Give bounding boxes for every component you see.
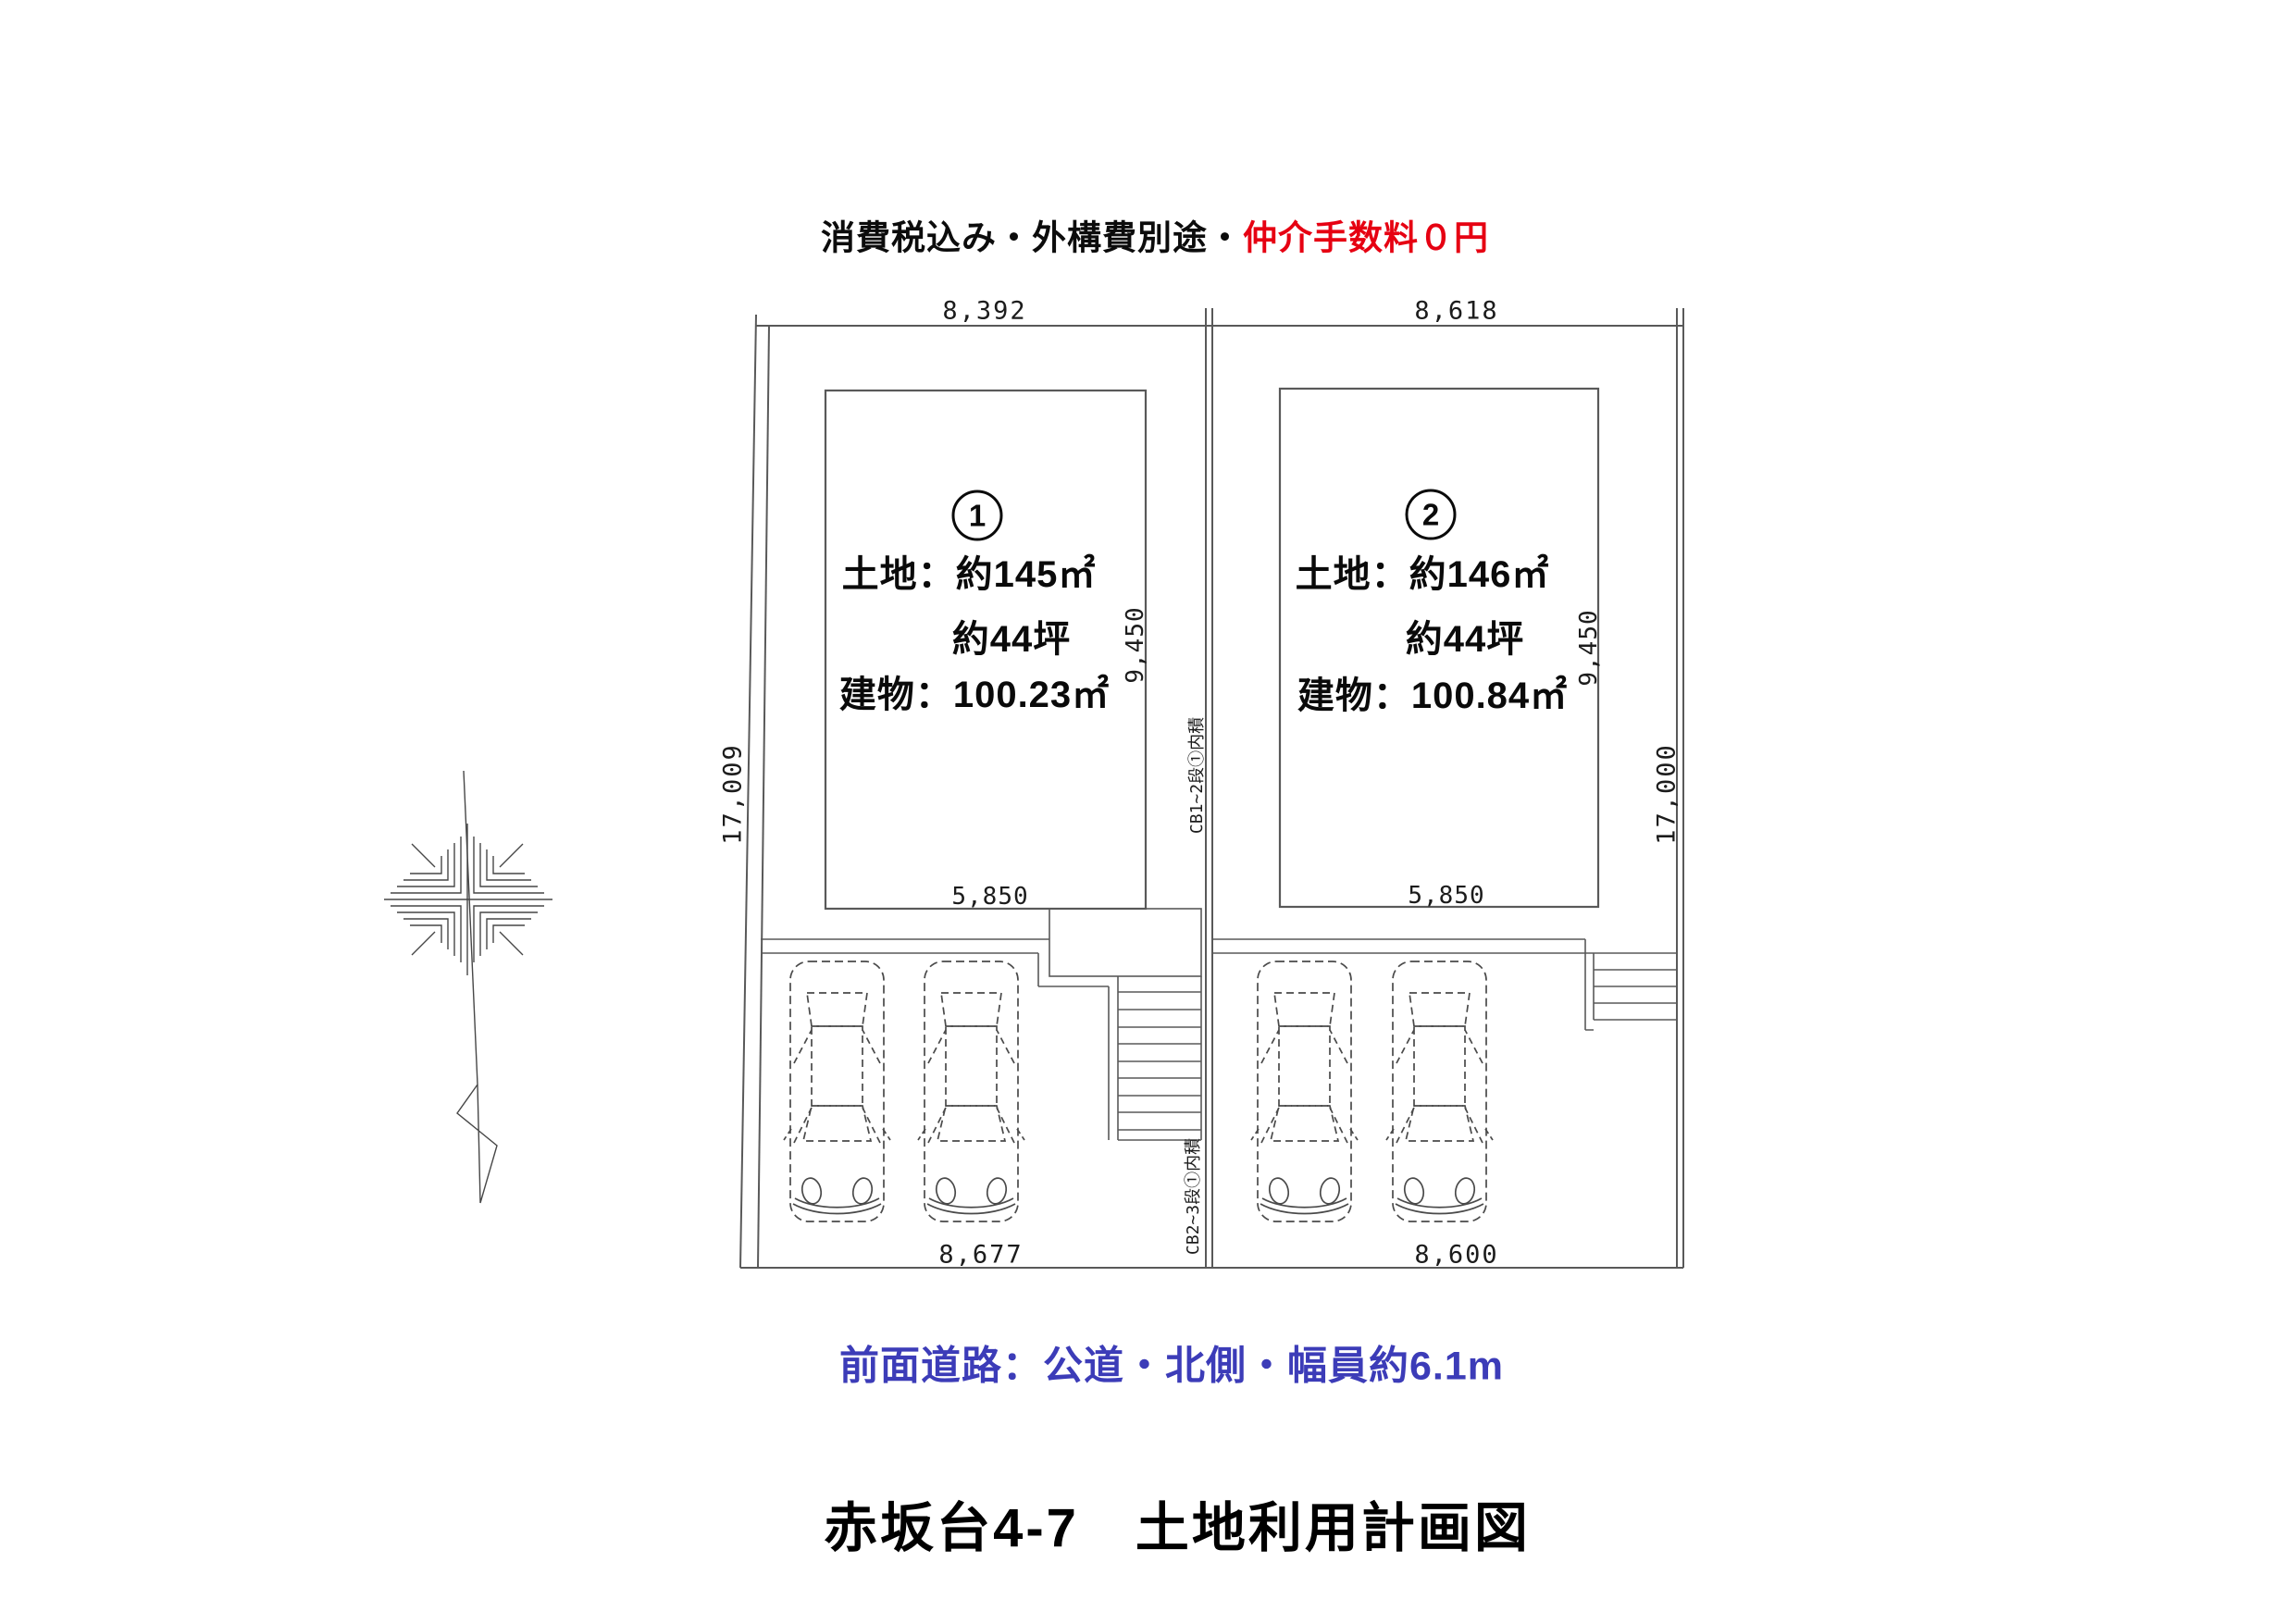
- lot1-building-depth-dim: 9,450: [1123, 606, 1148, 683]
- car-outline: [1386, 961, 1493, 1221]
- lot2-number-badge: 2: [1406, 490, 1457, 540]
- front-road-note: 前面道路：公道・北側・幅員約6.1m: [839, 1347, 1504, 1387]
- site-boundary-lines: [740, 308, 1683, 1268]
- lot2-building-area: 建物：100.84㎡: [1297, 677, 1568, 714]
- block-wall-note-upper: CB1~2段①内積: [1189, 717, 1206, 834]
- car-outline: [1251, 961, 1358, 1221]
- lot1-land-area: 土地：約145㎡: [842, 556, 1097, 593]
- lot1-building-area: 建物：100.23㎡: [839, 676, 1110, 713]
- price-note-black: 消費税込み・外構費別途・: [821, 219, 1243, 257]
- lot2-building-width-dim: 5,850: [1408, 884, 1484, 908]
- lot2-stairs-and-pad: [1212, 939, 1677, 1030]
- block-wall-note-lower: CB2~3段①内積: [1185, 1138, 1202, 1255]
- lot2-land-area: 土地：約146㎡: [1296, 556, 1550, 593]
- lot1-land-tsubo: 約44坪: [952, 621, 1072, 658]
- dim-side-left: 17,009: [721, 743, 746, 845]
- north-compass-icon: [384, 771, 552, 1203]
- dim-side-right: 17,000: [1655, 743, 1680, 845]
- lot2-land-tsubo: 約44坪: [1406, 621, 1525, 658]
- page-title: 赤坂台4-7 土地利用計画図: [824, 1502, 1531, 1556]
- dim-bottom-right: 8,600: [1414, 1243, 1498, 1268]
- dim-top-left: 8,392: [942, 299, 1026, 324]
- car-outline: [918, 961, 1024, 1221]
- land-use-plan-page: 消費税込み・外構費別途・仲介手数料０円 8,392 8,618 17,009 1…: [0, 0, 2296, 1624]
- car-outline: [784, 961, 890, 1221]
- lot1-building-width-dim: 5,850: [951, 885, 1028, 909]
- price-note: 消費税込み・外構費別途・仲介手数料０円: [821, 221, 1489, 255]
- price-note-red: 仲介手数料０円: [1243, 219, 1489, 257]
- lot2-building-depth-dim: 9,450: [1577, 609, 1601, 686]
- dim-bottom-left: 8,677: [938, 1243, 1023, 1268]
- lot1-number-badge: 1: [952, 490, 1003, 541]
- dim-top-right: 8,618: [1414, 299, 1498, 324]
